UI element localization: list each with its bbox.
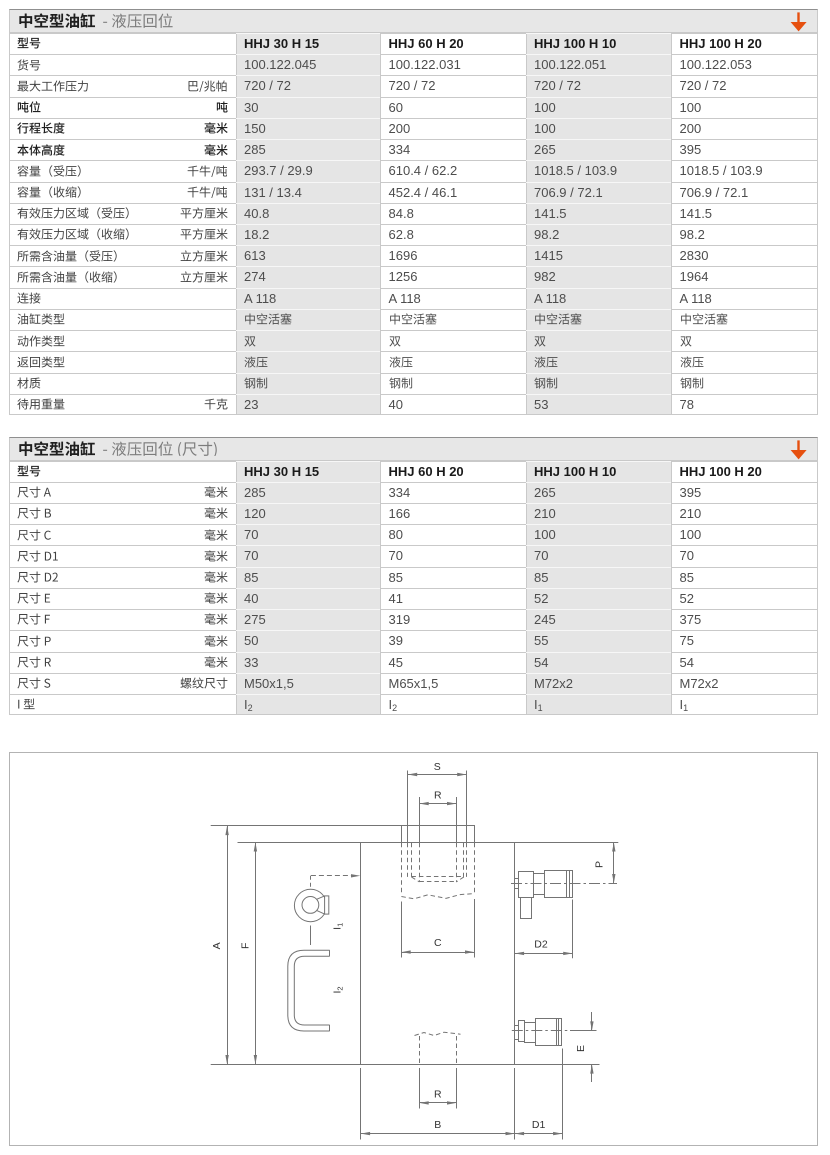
svg-text:A: A: [211, 942, 223, 949]
svg-text:B: B: [434, 1119, 441, 1131]
svg-text:E: E: [575, 1045, 587, 1052]
svg-text:P: P: [594, 861, 606, 868]
svg-text:S: S: [434, 761, 441, 773]
svg-text:D2: D2: [534, 938, 548, 950]
svg-text:F: F: [239, 943, 251, 949]
svg-text:D1: D1: [532, 1119, 546, 1131]
svg-text:R: R: [434, 790, 442, 802]
svg-text:C: C: [434, 937, 442, 949]
svg-text:R: R: [434, 1089, 442, 1101]
